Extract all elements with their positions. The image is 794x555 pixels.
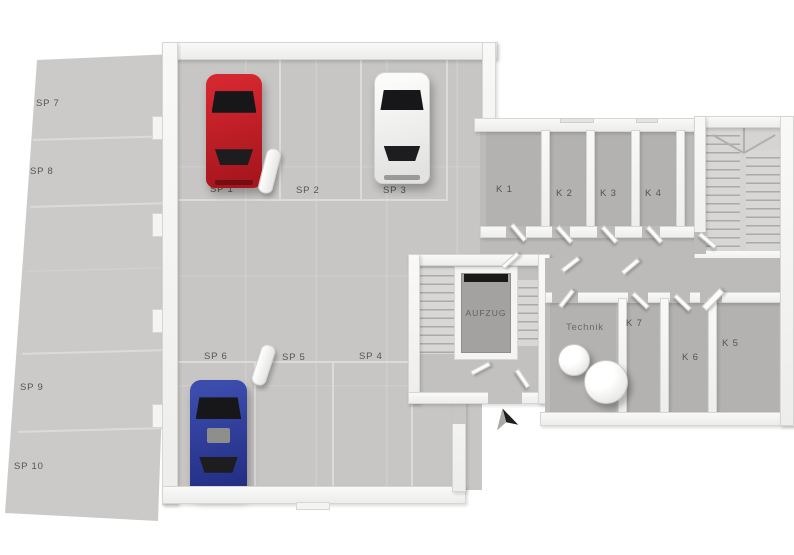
- parking-spot-label-sp2: SP 2: [296, 185, 320, 196]
- wall-pilaster: [152, 213, 163, 237]
- parking-spot-label-sp3: SP 3: [383, 185, 407, 196]
- floorplan-render: SP 7 SP 8 SP 9 SP 10 SP 1 SP 2 SP 3 SP 6…: [0, 0, 794, 555]
- room-label-k2: K 2: [556, 188, 573, 199]
- garage-wall-top: [162, 42, 498, 60]
- wall-pilaster: [152, 309, 163, 333]
- room-divider-wall: [708, 298, 717, 416]
- winder-line: [712, 134, 744, 154]
- room-label-k3: K 3: [600, 188, 617, 199]
- parking-spot-label-sp4: SP 4: [359, 351, 383, 362]
- elevator-label: AUFZUG: [462, 308, 510, 318]
- garage-wall-left: [162, 42, 178, 505]
- stairwell-wall-top: [694, 116, 792, 128]
- blue-car: [190, 380, 247, 496]
- room-divider-wall: [676, 130, 685, 232]
- room-divider-wall: [660, 298, 669, 416]
- wall-stub: [296, 502, 330, 510]
- car-sunroof: [207, 428, 230, 443]
- parking-spot-label-sp6: SP 6: [204, 351, 228, 362]
- parking-divider-line: [279, 60, 281, 199]
- room-label-k6: K 6: [682, 352, 699, 363]
- parking-front-line: [178, 199, 448, 201]
- room-label-k5: K 5: [722, 338, 739, 349]
- core-wall-bottom: [408, 392, 550, 404]
- room-label-k1: K 1: [496, 184, 513, 195]
- tank-cylinder-large: [584, 360, 628, 404]
- elevator-shaft: AUFZUG: [461, 273, 511, 353]
- car-windshield: [380, 90, 423, 111]
- room-k5-floor: [717, 302, 779, 414]
- room-divider-wall: [586, 130, 595, 232]
- cellar-wall-right: [780, 116, 794, 426]
- window-opening: [560, 118, 594, 123]
- room-divider-wall: [631, 130, 640, 232]
- parking-spot-label-sp7: SP 7: [36, 98, 60, 109]
- room-label-k7: K 7: [626, 318, 643, 329]
- door-opening: [488, 392, 522, 404]
- parking-spot-label-sp5: SP 5: [282, 352, 306, 363]
- room-k2-floor: [550, 132, 586, 228]
- winder-line: [743, 128, 745, 153]
- white-car: [374, 72, 430, 184]
- room-k1-floor: [486, 132, 540, 228]
- car-windshield: [212, 91, 257, 113]
- room-label-k4: K 4: [645, 188, 662, 199]
- parking-divider-line: [332, 362, 334, 486]
- tank-cylinder-small: [558, 344, 590, 376]
- car-rear-window: [215, 149, 253, 165]
- core-wall-top: [408, 254, 550, 266]
- car-windshield: [196, 397, 242, 419]
- wall-pilaster: [152, 404, 163, 428]
- elevator-door-opening: [464, 274, 508, 282]
- parking-divider-line: [360, 60, 362, 199]
- parking-divider-line: [446, 60, 448, 199]
- wall-pilaster: [152, 116, 163, 140]
- north-arrow-light-half: [492, 405, 518, 430]
- window-opening: [636, 118, 658, 123]
- north-arrow-icon: [492, 405, 518, 430]
- parking-spot-label-sp9: SP 9: [20, 382, 44, 393]
- room-k4-floor: [640, 132, 676, 228]
- car-rear-window: [199, 457, 238, 473]
- red-car: [206, 74, 262, 188]
- core-wall-left: [408, 254, 420, 404]
- room-divider-wall: [541, 130, 550, 232]
- winder-line: [744, 134, 776, 154]
- room-label-technik: Technik: [566, 322, 604, 333]
- stair-flight-left: [420, 268, 458, 354]
- cellar-wall-bottom: [540, 412, 794, 426]
- parking-spot-label-sp10: SP 10: [14, 461, 44, 472]
- parking-spot-label-sp8: SP 8: [30, 166, 54, 177]
- stair-winders: [706, 128, 780, 250]
- room-k3-floor: [595, 132, 631, 228]
- car-rear-window: [384, 146, 421, 161]
